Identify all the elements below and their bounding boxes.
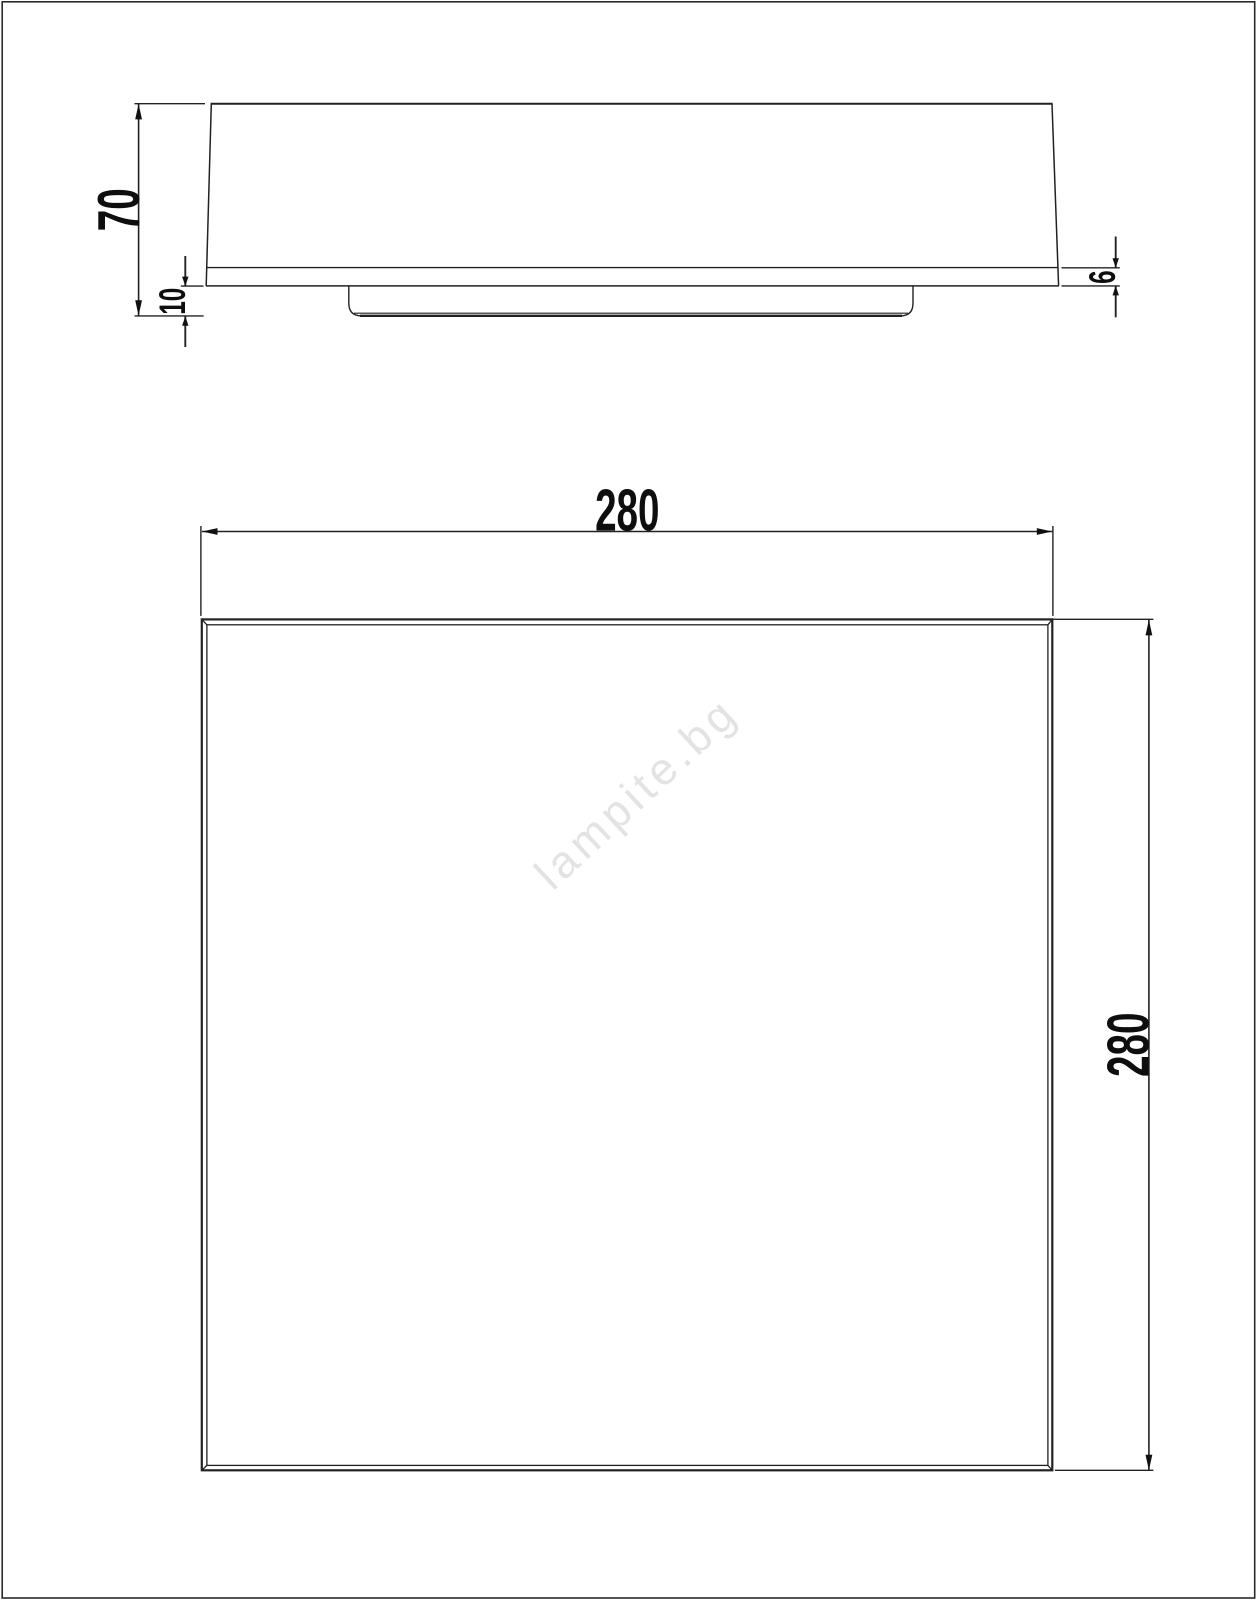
svg-text:10: 10	[152, 288, 193, 315]
svg-text:lampite.bg: lampite.bg	[525, 686, 748, 899]
svg-text:70: 70	[86, 188, 152, 231]
svg-text:280: 280	[1095, 1013, 1161, 1077]
svg-text:280: 280	[595, 477, 659, 543]
svg-text:6: 6	[1082, 270, 1123, 283]
